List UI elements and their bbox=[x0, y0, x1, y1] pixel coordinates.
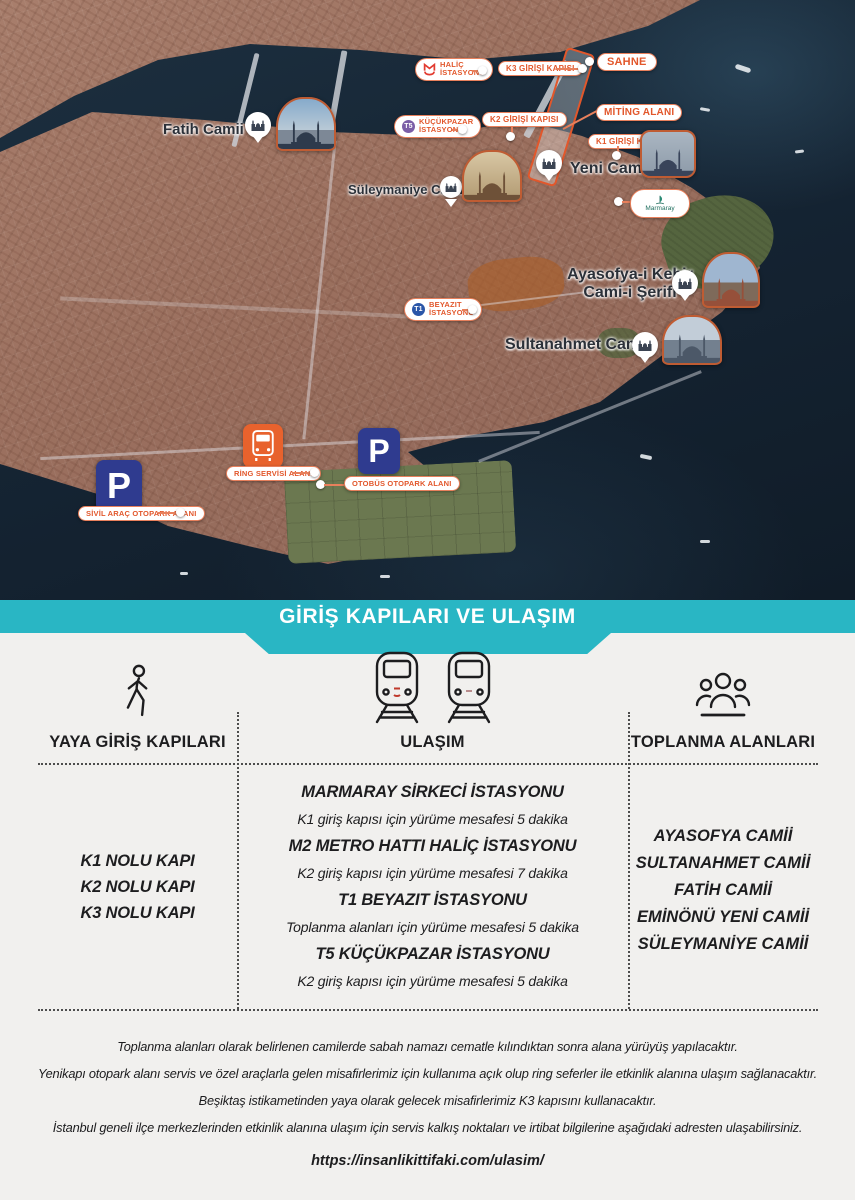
header-divider bbox=[38, 763, 818, 765]
mosque-pin-icon bbox=[536, 150, 562, 176]
station-detail: K2 giriş kapısı için yürüme mesafesi 7 d… bbox=[237, 860, 628, 887]
stage-label: SAHNE bbox=[607, 56, 647, 68]
connector bbox=[556, 68, 580, 70]
mosque-pin-icon bbox=[440, 176, 462, 198]
connector-dot bbox=[458, 125, 467, 134]
column-header-gates: YAYA GİRİŞ KAPILARI bbox=[38, 733, 237, 752]
station-name: T1 BEYAZIT İSTASYONU bbox=[237, 887, 628, 914]
ship bbox=[700, 107, 710, 112]
gathering-item: SÜLEYMANİYE CAMİİ bbox=[628, 931, 818, 958]
ayasofya-line2: Cami-i Şerifi bbox=[583, 284, 676, 301]
station-detail: K1 giriş kapısı için yürüme mesafesi 5 d… bbox=[237, 806, 628, 833]
gathering-area-list: AYASOFYA CAMİİ SULTANAHMET CAMİİ FATİH C… bbox=[628, 823, 818, 958]
info-url: https://insanlikittifaki.com/ulasim/ bbox=[0, 1153, 855, 1169]
ship bbox=[180, 572, 188, 575]
ayasofya-photo bbox=[702, 252, 760, 308]
tram-train-icon bbox=[440, 651, 498, 725]
people-group-icon bbox=[628, 661, 818, 723]
gathering-item: AYASOFYA CAMİİ bbox=[628, 823, 818, 850]
ship bbox=[640, 454, 653, 460]
ship bbox=[735, 64, 752, 74]
gate-item: K3 NOLU KAPI bbox=[38, 900, 237, 926]
satellite-map: HALİÇİSTASYONU K3 GİRİŞİ KAPISI SAHNE Mİ… bbox=[0, 0, 855, 600]
k2-gate-badge: K2 GİRİŞİ KAPISI bbox=[482, 112, 567, 127]
mosque-pin-icon bbox=[632, 332, 658, 358]
note-line: Yenikapı otopark alanı servis ve özel ar… bbox=[0, 1060, 855, 1087]
info-section: YAYA GİRİŞ KAPILARI ULAŞIM TOPLANMA ALAN… bbox=[0, 633, 855, 1200]
yeni-mosque-photo bbox=[640, 130, 696, 178]
station-name: M2 METRO HATTI HALİÇ İSTASYONU bbox=[237, 833, 628, 860]
connector-dot bbox=[478, 66, 487, 75]
mosque-pin-icon bbox=[672, 270, 698, 296]
notes-block: Toplanma alanları olarak belirlenen cami… bbox=[0, 1033, 855, 1141]
column-header-gathering: TOPLANMA ALANLARI bbox=[628, 733, 818, 752]
station-name: MARMARAY SİRKECİ İSTASYONU bbox=[237, 779, 628, 806]
station-detail: K2 giriş kapısı için yürüme mesafesi 5 d… bbox=[237, 968, 628, 995]
gate-list: K1 NOLU KAPI K2 NOLU KAPI K3 NOLU KAPI bbox=[38, 848, 237, 926]
connector bbox=[324, 484, 344, 486]
walking-person-icon bbox=[38, 657, 237, 723]
event-transport-infographic: HALİÇİSTASYONU K3 GİRİŞİ KAPISI SAHNE Mİ… bbox=[0, 0, 855, 1200]
car-parking-badge: SİVİL ARAÇ OTOPARK ALANI bbox=[78, 506, 205, 521]
t1-line-icon: T1 bbox=[412, 303, 425, 316]
metro-m-icon bbox=[423, 63, 436, 76]
gathering-item: EMİNÖNÜ YENİ CAMİİ bbox=[628, 904, 818, 931]
gathering-item: FATİH CAMİİ bbox=[628, 877, 818, 904]
note-line: Beşiktaş istikametinden yaya olarak gele… bbox=[0, 1087, 855, 1114]
train-icons bbox=[237, 651, 628, 725]
section-banner: GİRİŞ KAPILARI VE ULAŞIM bbox=[0, 600, 855, 633]
rally-area-badge: MİTİNG ALANI bbox=[596, 104, 682, 121]
shuttle-bus-icon bbox=[243, 424, 283, 468]
connector-dot bbox=[578, 64, 587, 73]
suleymaniye-photo bbox=[462, 150, 522, 202]
connector bbox=[158, 512, 178, 514]
note-line: İstanbul geneli ilçe merkezlerinden etki… bbox=[0, 1114, 855, 1141]
kucukpazar-station-badge: T5 KÜÇÜKPAZARİSTASYONU bbox=[394, 115, 481, 138]
transport-list: MARMARAY SİRKECİ İSTASYONU K1 giriş kapı… bbox=[237, 779, 628, 995]
stage-badge: SAHNE bbox=[597, 53, 657, 71]
connector-dot bbox=[468, 305, 477, 314]
t5-line-icon: T5 bbox=[402, 120, 415, 133]
bus-parking-icon: P bbox=[358, 428, 400, 474]
ship bbox=[380, 575, 390, 578]
ship bbox=[700, 540, 710, 543]
station-name: T5 KÜÇÜKPAZAR İSTASYONU bbox=[237, 941, 628, 968]
gate-item: K2 NOLU KAPI bbox=[38, 874, 237, 900]
connector-dot bbox=[506, 132, 515, 141]
fatih-mosque-label: Fatih Camii bbox=[163, 121, 244, 138]
connector-dot bbox=[176, 508, 185, 517]
ship bbox=[795, 149, 804, 153]
mosque-pin-icon bbox=[245, 112, 271, 138]
marmaray-train-icon bbox=[368, 651, 426, 725]
gathering-item: SULTANAHMET CAMİİ bbox=[628, 850, 818, 877]
banner-title: GİRİŞ KAPILARI VE ULAŞIM bbox=[279, 605, 576, 629]
bus-parking-label: OTOBÜS OTOPARK ALANI bbox=[352, 479, 452, 488]
bottom-divider bbox=[38, 1009, 818, 1011]
sultanahmet-photo bbox=[662, 315, 722, 365]
connector-dot bbox=[310, 468, 319, 477]
station-detail: Toplanma alanları için yürüme mesafesi 5… bbox=[237, 914, 628, 941]
marmaray-station-badge: Marmaray bbox=[630, 189, 690, 218]
rally-area-label: MİTİNG ALANI bbox=[604, 107, 674, 118]
fatih-mosque-photo bbox=[276, 97, 336, 151]
connector bbox=[292, 472, 312, 474]
bus-parking-badge: OTOBÜS OTOPARK ALANI bbox=[344, 476, 460, 491]
note-line: Toplanma alanları olarak belirlenen cami… bbox=[0, 1033, 855, 1060]
k2-gate-label: K2 GİRİŞİ KAPISI bbox=[490, 115, 559, 124]
gate-item: K1 NOLU KAPI bbox=[38, 848, 237, 874]
column-header-transport: ULAŞIM bbox=[237, 733, 628, 752]
connector-dot bbox=[585, 57, 594, 66]
connector-dot bbox=[612, 151, 621, 160]
sultanahmet-label: Sultanahmet Camii bbox=[505, 336, 649, 354]
yeni-mosque-label: Yeni Camii bbox=[570, 160, 651, 178]
marmaray-label: Marmaray bbox=[645, 206, 674, 213]
car-parking-icon: P bbox=[96, 460, 142, 512]
